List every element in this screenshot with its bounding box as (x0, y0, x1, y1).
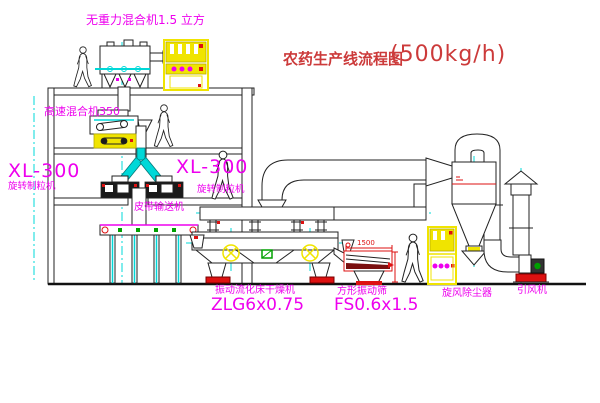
granulator-right (143, 176, 185, 198)
drawing-title-capacity: (500kg/h) (390, 44, 506, 66)
label-high-speed-mixer: 高速混合机350 (44, 106, 120, 117)
exhaust-flange (258, 200, 286, 207)
label-fan: 引风机 (517, 286, 547, 296)
drawing-title: 农药生产线流程图 (283, 52, 403, 67)
label-granulator-left-name: 旋转制粒机 (8, 182, 56, 192)
label-cyclone: 旋风除尘器 (442, 289, 492, 299)
exhaust-stack (505, 171, 537, 255)
worker-figure (74, 47, 92, 87)
label-sieve-dimension: 1500 (357, 240, 375, 247)
label-granulator-left-model: XL-300 (8, 162, 80, 181)
control-cabinet-bottom (428, 227, 456, 284)
label-dryer-model: ZLG6x0.75 (211, 297, 304, 314)
label-granulator-mid-model: XL-300 (176, 158, 248, 177)
cad-canvas: 农药生产线流程图 (500kg/h) 无重力混合机1.5 立方 高速混合机350… (0, 0, 600, 403)
worker-figure (402, 234, 423, 282)
label-gravity-mixer: 无重力混合机1.5 立方 (86, 14, 205, 26)
cyclone-inlet (426, 158, 452, 186)
label-belt-conveyor: 皮带输送机 (134, 203, 184, 213)
worker-figure (154, 105, 172, 147)
control-cabinet-top (164, 40, 208, 90)
gravity-free-mixer (95, 40, 166, 88)
belt-conveyor (100, 225, 198, 283)
label-sieve-model: FS0.6x1.5 (334, 297, 418, 314)
exhaust-duct (262, 160, 426, 200)
label-granulator-mid-name: 旋转制粒机 (197, 185, 245, 195)
cyclone-separator (452, 134, 519, 272)
